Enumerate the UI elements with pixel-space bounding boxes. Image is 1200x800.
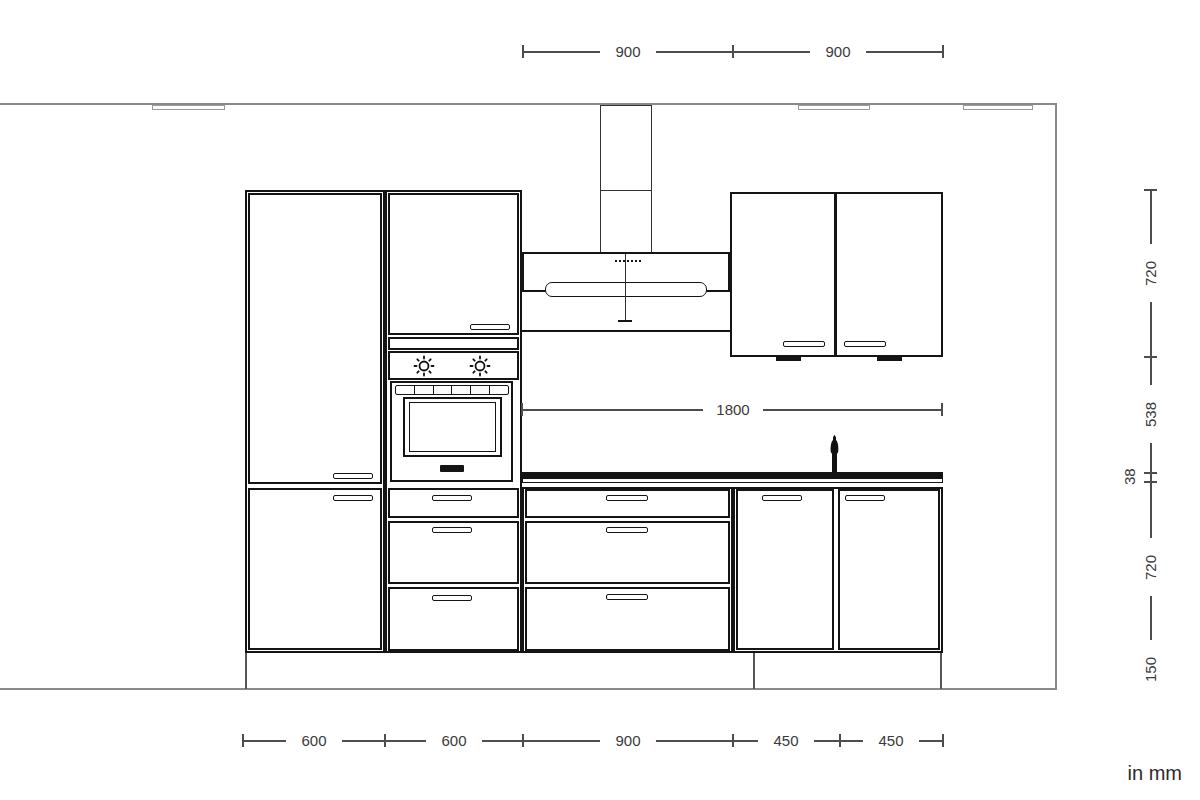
dimension-tick [839, 734, 841, 747]
plinth-right-end [940, 653, 942, 689]
bottom-dimension-value: 900 [600, 732, 656, 749]
dimension-tick [942, 734, 944, 747]
hood-glass-canopy [545, 282, 707, 297]
oven-knob-icon [413, 355, 435, 377]
dimension-tick [942, 45, 944, 58]
tall-cabinet-lower-handle [333, 495, 373, 501]
worktop-front-edge [522, 478, 943, 483]
bottom-dimension-value: 450 [758, 732, 814, 749]
ceiling-mark [152, 105, 225, 110]
bottom-dimension-line [243, 740, 943, 742]
right-dimension-value: 720 [1141, 538, 1161, 596]
bottom-dimension-value: 450 [863, 732, 919, 749]
niche-dimension-value: 1800 [703, 401, 763, 418]
dimension-tick [732, 45, 734, 58]
hood-lower-line [522, 330, 730, 332]
right-dimension-value: 150 [1141, 640, 1161, 698]
sink-base-right-handle [845, 495, 885, 501]
dimension-tick [384, 734, 386, 747]
dimension-tick [732, 734, 734, 747]
dimension-tick [941, 403, 943, 416]
oven-tower-door-handle [470, 324, 510, 330]
hood-chimney-upper [600, 105, 652, 191]
oven-handle [440, 465, 464, 472]
ceiling-mark [963, 105, 1033, 110]
dimension-tick [521, 403, 523, 416]
oven-door-window [403, 397, 502, 457]
sink-base-right-door [838, 489, 940, 650]
right-wall-line [1055, 103, 1057, 690]
dimension-tick [522, 734, 524, 747]
top-dimension-value: 900 [810, 43, 866, 60]
oven-tower-filler-band [388, 337, 519, 350]
dimension-tick [1144, 472, 1157, 474]
hood-controls-icon [615, 260, 641, 262]
oven-control-strip [395, 385, 509, 395]
unit-label: in mm [1106, 762, 1182, 785]
wall-cabinet-divider [834, 192, 837, 357]
kitchen-elevation-drawing: 900 900 1800 600 600 900 450 450 720 538… [0, 0, 1200, 800]
oven-tower-drawer-3-handle [432, 595, 472, 601]
dimension-tick [1144, 481, 1157, 483]
oven-tower-drawer-2-handle [432, 527, 472, 533]
oven-tower-drawer-1 [388, 488, 519, 518]
base-drawer-1 [525, 489, 730, 518]
oven-window-inner-frame [409, 402, 496, 452]
sink-base-left-door [736, 489, 834, 650]
under-cabinet-light-icon [877, 357, 902, 361]
plinth-joint [753, 653, 755, 689]
dimension-tick [242, 734, 244, 747]
oven-tower-upper-door [388, 193, 519, 335]
right-dimension-value: 720 [1141, 244, 1161, 302]
ceiling-mark [798, 105, 870, 110]
oven-control-panel [388, 351, 519, 380]
right-dimension-value: 538 [1141, 385, 1161, 443]
base-drawer-1-handle [606, 495, 648, 501]
under-cabinet-light-icon [776, 357, 801, 361]
faucet-icon [824, 434, 844, 473]
wall-cabinet-right-handle [844, 341, 886, 347]
bottom-dimension-value: 600 [426, 732, 482, 749]
top-dimension-value: 900 [600, 43, 656, 60]
base-drawer-3-handle [606, 594, 648, 600]
oven-tower-drawer-1-handle [432, 495, 472, 501]
base-drawer-2-handle [606, 527, 648, 533]
dimension-tick [522, 45, 524, 58]
centerline-tick [618, 320, 632, 322]
sink-base-left-handle [762, 495, 802, 501]
dimension-tick [1144, 189, 1157, 191]
hood-chimney-lower [600, 190, 652, 253]
tall-cabinet-upper-door [248, 193, 382, 484]
dimension-tick [1144, 356, 1157, 358]
tall-cabinet-lower-door [248, 488, 382, 650]
oven-knob-icon [469, 355, 491, 377]
right-dimension-value: 38 [1120, 461, 1140, 493]
hob-centerline [625, 254, 626, 322]
bottom-dimension-value: 600 [286, 732, 342, 749]
plinth-left-end [245, 653, 247, 689]
floor-line [0, 688, 1057, 690]
tall-cabinet-upper-handle [333, 473, 373, 479]
wall-cabinet-left-handle [783, 341, 825, 347]
